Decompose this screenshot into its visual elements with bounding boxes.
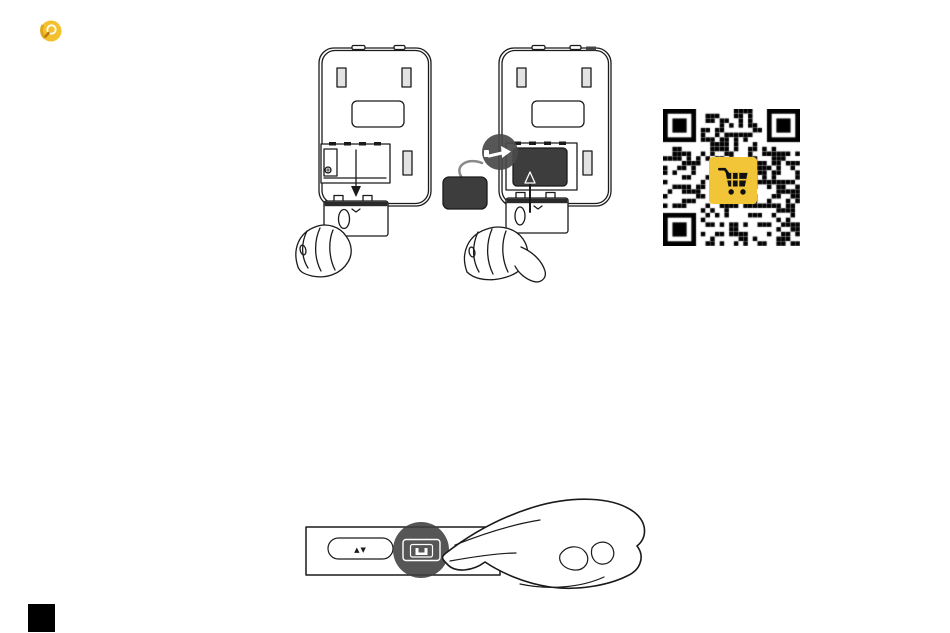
qr-code xyxy=(663,109,800,246)
installed-battery xyxy=(513,148,567,186)
updown-button-label: ▲▼ xyxy=(354,546,367,554)
power-plug xyxy=(443,177,487,209)
connect-battery-step-illustration xyxy=(435,40,620,285)
press-battery-button-illustration: ▲▼ xyxy=(295,490,650,605)
battery-pack xyxy=(506,193,568,234)
remove-battery-step-illustration xyxy=(290,40,440,285)
mount-slot xyxy=(403,151,412,175)
hand xyxy=(296,225,351,277)
qr-center-badge xyxy=(709,157,757,204)
mount-slot xyxy=(583,151,592,175)
updown-button: ▲▼ xyxy=(328,538,393,559)
mount-slot xyxy=(337,68,346,87)
hand xyxy=(464,227,545,282)
page-marker-square xyxy=(28,604,55,632)
mount-slot xyxy=(402,68,411,87)
shopping-cart-icon xyxy=(713,161,753,201)
mount-slot xyxy=(517,68,526,87)
magnifier-logo-icon[interactable] xyxy=(39,19,63,43)
cable xyxy=(459,161,482,179)
mount-slot xyxy=(582,68,591,87)
manual-page: ▲▼ xyxy=(0,0,950,633)
